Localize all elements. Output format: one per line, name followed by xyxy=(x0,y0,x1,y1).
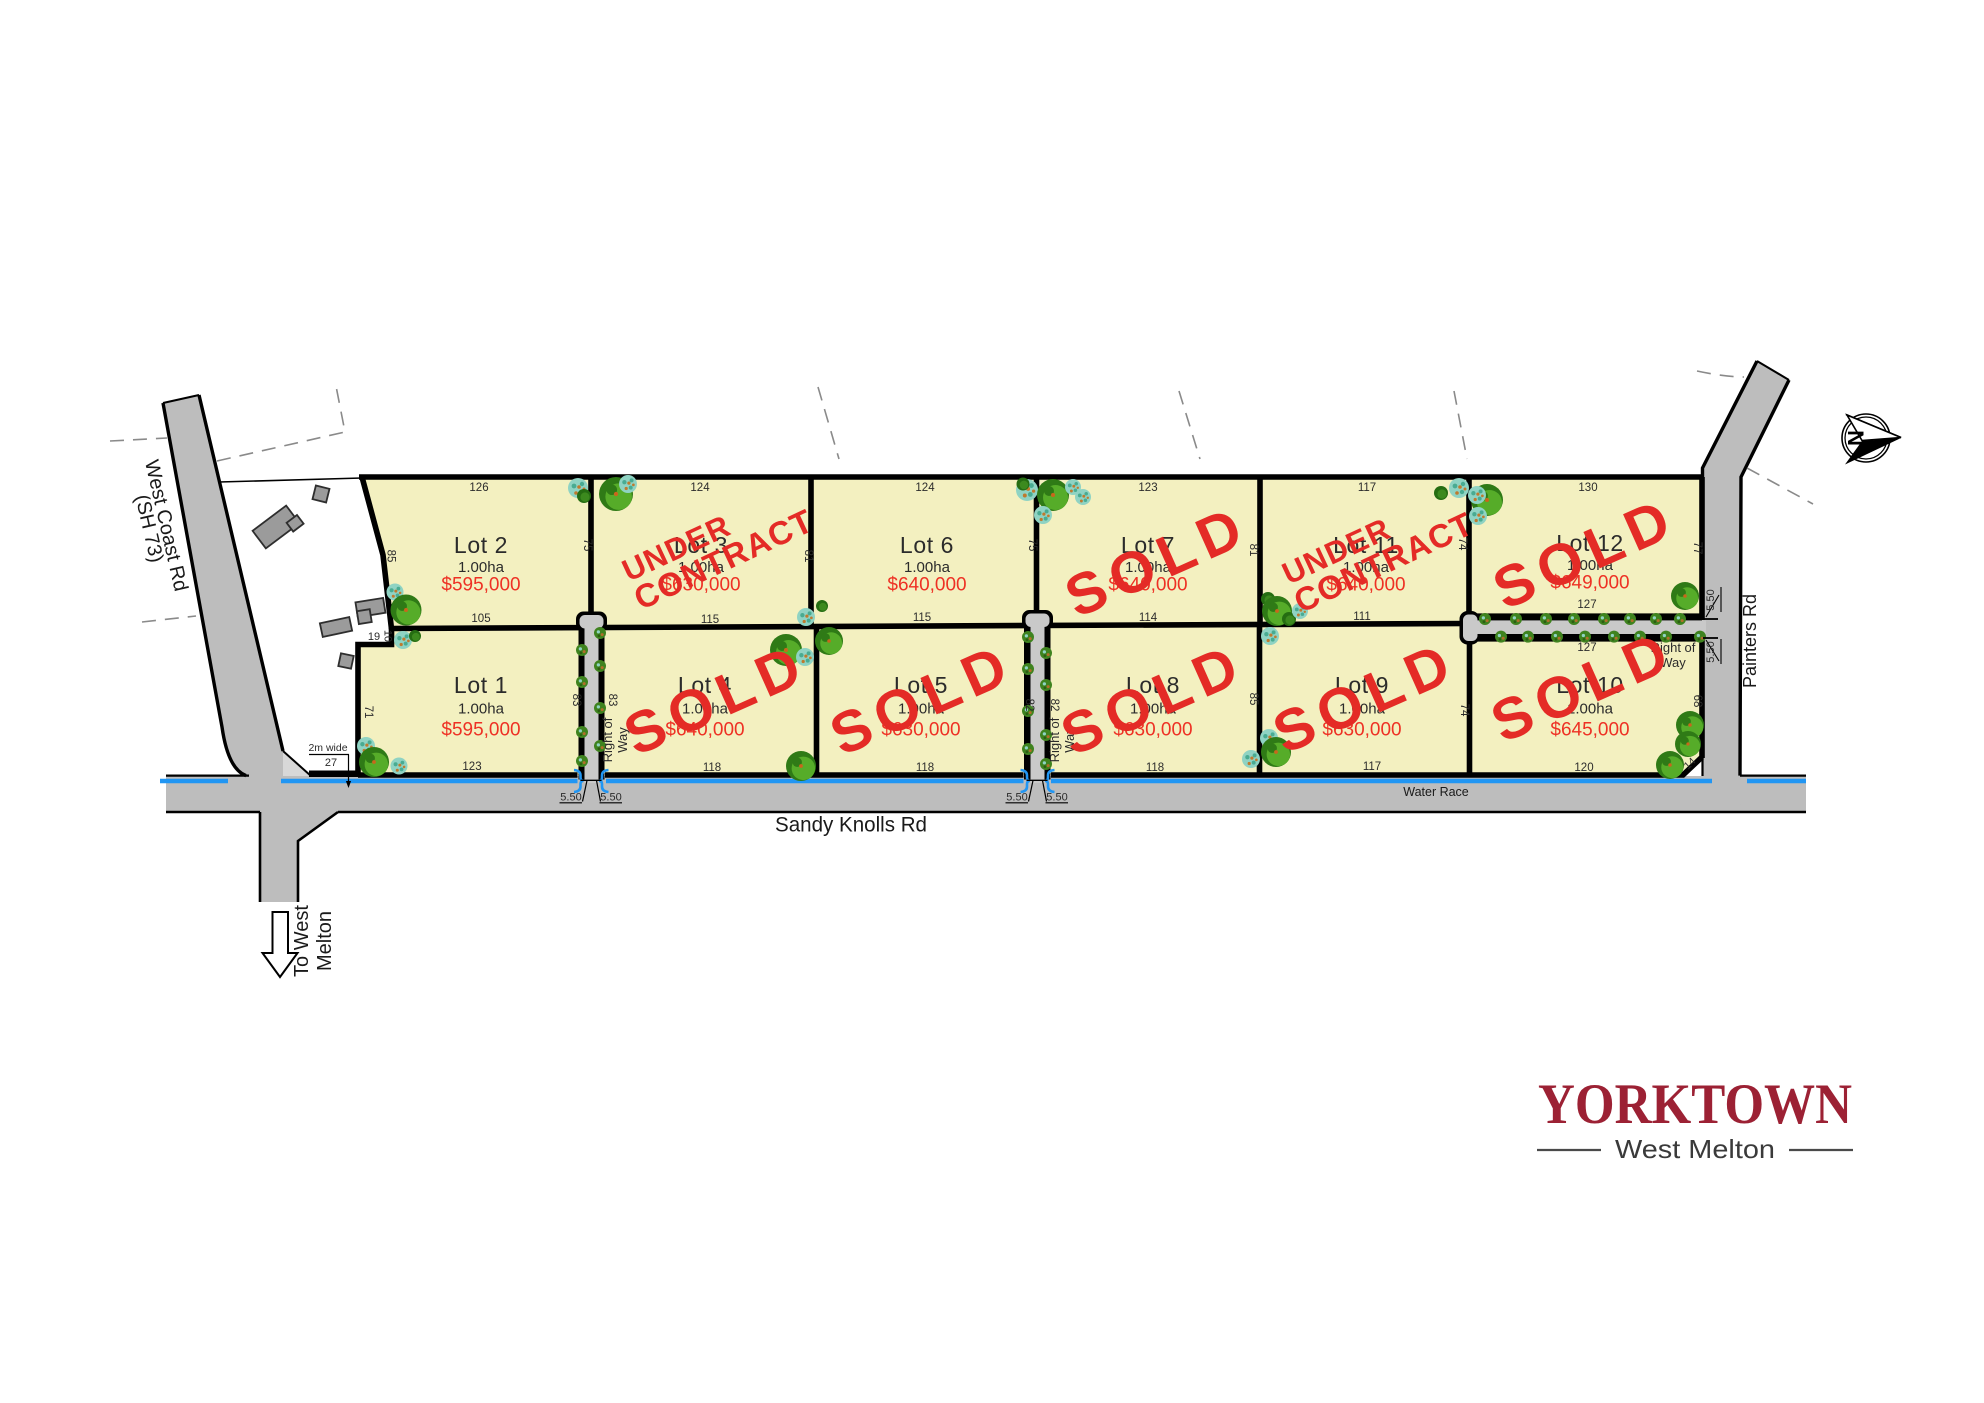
svg-text:Lot 6: Lot 6 xyxy=(900,532,954,558)
svg-text:75: 75 xyxy=(581,539,593,552)
svg-text:124: 124 xyxy=(690,482,710,494)
svg-text:83: 83 xyxy=(570,694,582,707)
svg-text:127: 127 xyxy=(1577,599,1596,611)
svg-text:5.50: 5.50 xyxy=(1046,792,1067,804)
svg-text:83: 83 xyxy=(606,694,618,707)
svg-text:117: 117 xyxy=(1358,482,1376,494)
svg-text:2m wide: 2m wide xyxy=(308,742,347,754)
svg-text:130: 130 xyxy=(1578,482,1597,494)
svg-text:10: 10 xyxy=(382,630,394,642)
svg-text:Sandy Knolls Rd: Sandy Knolls Rd xyxy=(775,814,927,837)
svg-text:Water Race: Water Race xyxy=(1403,785,1469,799)
svg-text:123: 123 xyxy=(1138,482,1157,494)
svg-text:1.00ha: 1.00ha xyxy=(458,559,505,576)
svg-text:Lot 1: Lot 1 xyxy=(454,672,508,698)
svg-text:124: 124 xyxy=(915,482,935,494)
svg-text:19: 19 xyxy=(368,631,380,643)
svg-text:115: 115 xyxy=(701,614,719,626)
svg-text:West Melton: West Melton xyxy=(1615,1134,1775,1164)
svg-text:85: 85 xyxy=(1247,693,1259,706)
svg-text:82: 82 xyxy=(1023,699,1035,712)
svg-text:85: 85 xyxy=(385,550,397,563)
svg-text:Painters Rd: Painters Rd xyxy=(1740,594,1760,688)
svg-text:81: 81 xyxy=(802,550,814,563)
svg-text:123: 123 xyxy=(462,761,481,773)
svg-text:$640,000: $640,000 xyxy=(887,575,966,596)
svg-text:115: 115 xyxy=(913,612,931,624)
svg-text:77: 77 xyxy=(1691,542,1703,555)
svg-text:117: 117 xyxy=(1363,761,1381,773)
svg-text:68: 68 xyxy=(1691,695,1703,708)
svg-text:1.00ha: 1.00ha xyxy=(904,559,951,576)
svg-text:75: 75 xyxy=(1026,539,1038,552)
svg-text:Melton: Melton xyxy=(314,911,336,971)
svg-text:118: 118 xyxy=(703,762,721,774)
svg-text:Right of: Right of xyxy=(600,717,615,762)
svg-text:118: 118 xyxy=(1146,762,1164,774)
svg-text:5.50: 5.50 xyxy=(560,792,581,804)
svg-text:27: 27 xyxy=(325,757,337,769)
svg-text:114: 114 xyxy=(1139,612,1158,624)
svg-text:74: 74 xyxy=(1458,704,1470,717)
svg-text:5.50: 5.50 xyxy=(1705,641,1717,662)
svg-text:120: 120 xyxy=(1574,762,1593,774)
svg-text:105: 105 xyxy=(471,613,490,625)
svg-text:5.50: 5.50 xyxy=(600,792,621,804)
svg-text:5.50: 5.50 xyxy=(1705,589,1717,610)
svg-text:1.00ha: 1.00ha xyxy=(458,701,505,718)
svg-text:$595,000: $595,000 xyxy=(441,575,520,596)
svg-text:Lot 2: Lot 2 xyxy=(454,532,508,558)
svg-text:YORKTOWN: YORKTOWN xyxy=(1538,1073,1852,1136)
svg-text:71: 71 xyxy=(362,706,374,719)
svg-text:To West: To West xyxy=(291,905,313,977)
svg-text:N: N xyxy=(1843,430,1868,446)
svg-text:118: 118 xyxy=(916,762,934,774)
svg-text:$595,000: $595,000 xyxy=(441,720,520,741)
svg-text:5.50: 5.50 xyxy=(1006,792,1027,804)
svg-text:111: 111 xyxy=(1353,611,1370,623)
svg-text:126: 126 xyxy=(469,482,488,494)
